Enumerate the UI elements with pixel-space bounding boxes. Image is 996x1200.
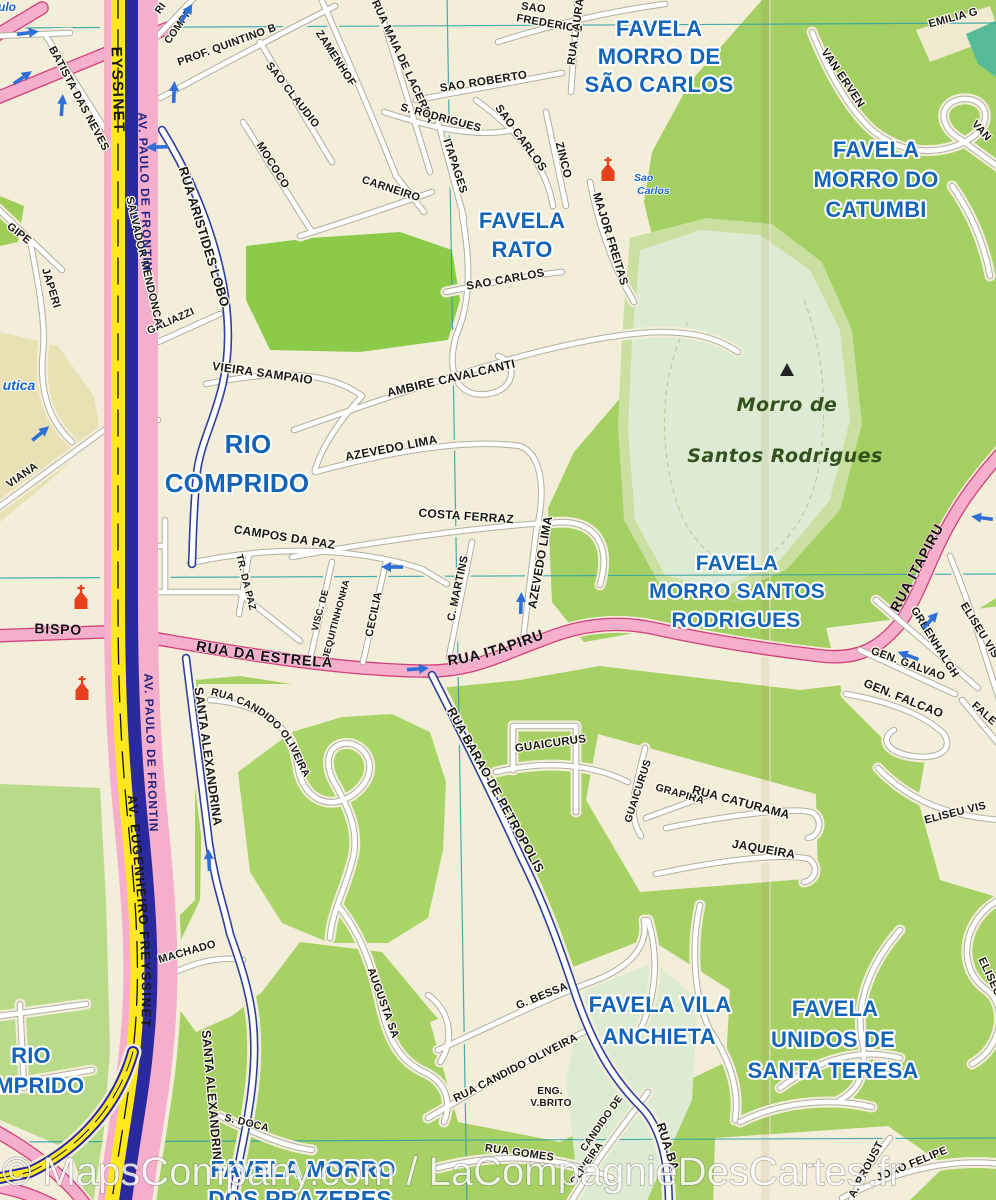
park-block xyxy=(246,232,460,352)
district-label: RATO xyxy=(491,237,552,262)
district-label: FAVELA xyxy=(479,208,565,233)
district-label: COMPRIDO xyxy=(0,1073,84,1098)
peak-label: Santos Rodrigues xyxy=(687,445,883,467)
district-label: SANTA TERESA xyxy=(747,1058,918,1083)
peak-label: Morro de xyxy=(737,394,838,416)
district-label: UNIDOS DE xyxy=(771,1027,895,1052)
district-label: RIO xyxy=(11,1043,51,1068)
highway-label: EYSSINET xyxy=(107,46,127,133)
district-label: MORRO SANTOS xyxy=(649,580,825,603)
district-label: COMPRIDO xyxy=(165,468,310,498)
district-label: FAVELA xyxy=(696,552,778,575)
district-label: FAVELA VILA xyxy=(589,992,732,1017)
district-label: FAVELA xyxy=(616,16,702,41)
church-label: Carlos xyxy=(637,185,670,197)
street-label: V.BRITO xyxy=(530,1098,571,1109)
district-label: RODRIGUES xyxy=(672,609,801,632)
map-viewport: PROF. QUINTINO BBATISTA DAS NEVESSAO CLA… xyxy=(0,0,996,1200)
street-label: ENG. xyxy=(537,1086,562,1097)
district-label: FAVELA xyxy=(833,137,919,162)
district-label: FAVELA xyxy=(792,996,878,1021)
place-label: utica xyxy=(3,377,36,393)
watermark: © MapsCompany.com / LaCompagnieDesCartes… xyxy=(2,1150,902,1194)
map-canvas[interactable]: PROF. QUINTINO BBATISTA DAS NEVESSAO CLA… xyxy=(0,0,996,1200)
district-label: ANCHIETA xyxy=(602,1024,716,1049)
district-label: SÃO CARLOS xyxy=(585,72,734,97)
road-label: BISPO xyxy=(34,620,82,638)
district-label: MORRO DE xyxy=(598,44,721,69)
district-label: MORRO DO xyxy=(813,167,938,192)
district-label: RIO xyxy=(225,429,272,459)
district-label: CATUMBI xyxy=(825,197,926,222)
church-label: Sao xyxy=(634,172,654,184)
place-label: ulo xyxy=(0,0,16,14)
